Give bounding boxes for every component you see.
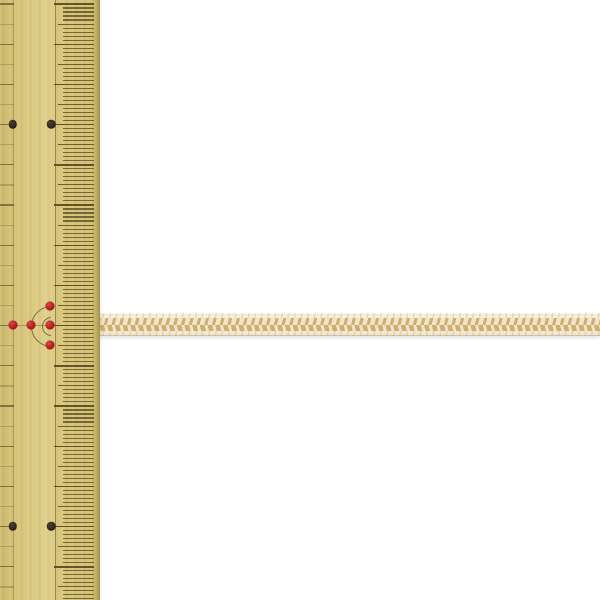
ruler-tick-mm bbox=[63, 329, 94, 330]
ruler-left-guide-line bbox=[13, 0, 14, 600]
ruler-left-tick-cm bbox=[0, 566, 14, 567]
black-dot-upper-left bbox=[8, 120, 17, 129]
ruler-tick-mm bbox=[63, 180, 94, 181]
ruler-tick-mm bbox=[63, 562, 94, 563]
ruler-tick-mm bbox=[63, 341, 94, 342]
ruler-tick-mm bbox=[63, 80, 94, 81]
ruler-tick-mm bbox=[63, 413, 94, 414]
ruler-left-tick-cm bbox=[0, 446, 14, 447]
ruler-tick-mm bbox=[63, 530, 94, 531]
ruler-tick-mm bbox=[63, 28, 94, 29]
ruler-tick-mm bbox=[63, 160, 94, 161]
ruler-tick-mm bbox=[63, 192, 94, 193]
ruler-tick-mm bbox=[63, 188, 94, 189]
ruler-tick-mm bbox=[63, 598, 94, 599]
ruler-tick-mm bbox=[63, 56, 94, 57]
ruler-left-tick-half-cm bbox=[0, 144, 14, 145]
ruler-left-tick-half-cm bbox=[0, 104, 14, 105]
ruler-tick-mm bbox=[63, 458, 94, 459]
ruler-left-tick-half-cm bbox=[0, 225, 14, 226]
ruler-tick-cm bbox=[54, 405, 94, 406]
ruler-tick-mm bbox=[63, 92, 94, 93]
ruler-tick-mm bbox=[63, 168, 94, 169]
ruler-tick-mm bbox=[63, 522, 94, 523]
ruler-tick-mm bbox=[63, 389, 94, 390]
ruler-tick-mm bbox=[63, 108, 94, 109]
bamboo-ruler bbox=[0, 0, 100, 600]
ruler-tick-mm bbox=[63, 510, 94, 511]
ruler-left-tick-cm bbox=[0, 365, 14, 366]
ruler-tick-mm bbox=[63, 237, 94, 238]
ruler-tick-cm bbox=[54, 204, 94, 205]
ruler-tick-cm bbox=[54, 566, 94, 567]
ruler-tick-mm bbox=[63, 7, 94, 8]
ruler-left-tick-half-cm bbox=[0, 305, 14, 306]
ruler-tick-cm bbox=[54, 486, 94, 487]
ruler-tick-mm bbox=[63, 582, 94, 583]
ruler-left-tick-cm bbox=[0, 84, 14, 85]
ruler-tick-mm bbox=[63, 229, 94, 230]
ruler-tick-mm bbox=[63, 558, 94, 559]
ruler-tick-mm bbox=[63, 176, 94, 177]
ruler-tick-mm bbox=[63, 397, 94, 398]
ruler-tick-mm bbox=[63, 417, 94, 418]
ruler-left-tick-cm bbox=[0, 3, 14, 4]
ruler-tick-mm bbox=[63, 393, 94, 394]
ruler-tick-mm bbox=[63, 333, 94, 334]
ruler-tick-mm bbox=[63, 96, 94, 97]
ruler-tick-mm bbox=[63, 434, 94, 435]
cord-bottom-edge bbox=[90, 331, 600, 336]
ruler-tick-cm bbox=[54, 285, 94, 286]
ruler-tick-half-cm bbox=[58, 385, 94, 386]
ruler-tick-mm bbox=[63, 196, 94, 197]
ruler-tick-cm bbox=[54, 325, 94, 326]
ruler-tick-mm bbox=[63, 293, 94, 294]
ruler-tick-mm bbox=[63, 470, 94, 471]
ruler-tick-mm bbox=[63, 478, 94, 479]
ruler-tick-mm bbox=[63, 140, 94, 141]
ruler-tick-mm bbox=[63, 249, 94, 250]
ruler-tick-mm bbox=[63, 574, 94, 575]
ruler-scale-guide-line bbox=[55, 0, 56, 600]
red-dot-far-left bbox=[8, 321, 17, 330]
ruler-tick-mm bbox=[63, 550, 94, 551]
ruler-tick-mm bbox=[63, 570, 94, 571]
ruler-tick-mm bbox=[63, 542, 94, 543]
ruler-tick-mm bbox=[63, 309, 94, 310]
ruler-tick-mm bbox=[63, 490, 94, 491]
ruler-tick-mm bbox=[63, 148, 94, 149]
ruler-tick-mm bbox=[63, 152, 94, 153]
ruler-left-tick-half-cm bbox=[0, 265, 14, 266]
ruler-tick-half-cm bbox=[58, 466, 94, 467]
ruler-tick-mm bbox=[63, 277, 94, 278]
cord-braid-center bbox=[90, 318, 600, 331]
ruler-tick-mm bbox=[63, 502, 94, 503]
ruler-tick-mm bbox=[63, 200, 94, 201]
ruler-tick-half-cm bbox=[58, 546, 94, 547]
ruler-tick-mm bbox=[63, 212, 94, 213]
ruler-tick-mm bbox=[63, 482, 94, 483]
black-dot-lower-left bbox=[8, 522, 17, 531]
ruler-tick-mm bbox=[63, 216, 94, 217]
ruler-tick-mm bbox=[63, 498, 94, 499]
ruler-tick-mm bbox=[63, 15, 94, 16]
ruler-left-tick-half-cm bbox=[0, 184, 14, 185]
ruler-tick-mm bbox=[63, 233, 94, 234]
black-dot-lower-right bbox=[47, 522, 56, 531]
ruler-tick-half-cm bbox=[58, 225, 94, 226]
ruler-tick-half-cm bbox=[58, 265, 94, 266]
ruler-tick-half-cm bbox=[58, 586, 94, 587]
ruler-tick-mm bbox=[63, 281, 94, 282]
ruler-left-tick-cm bbox=[0, 44, 14, 45]
ruler-tick-mm bbox=[63, 438, 94, 439]
black-dot-upper-right bbox=[47, 120, 56, 129]
ruler-tick-mm bbox=[63, 361, 94, 362]
red-dot-left bbox=[26, 321, 35, 330]
ruler-tick-mm bbox=[63, 474, 94, 475]
ruler-tick-mm bbox=[63, 52, 94, 53]
ruler-tick-mm bbox=[63, 409, 94, 410]
ruler-tick-mm bbox=[63, 421, 94, 422]
ruler-tick-mm bbox=[63, 357, 94, 358]
ruler-tick-mm bbox=[63, 518, 94, 519]
ruler-tick-mm bbox=[63, 301, 94, 302]
ruler-tick-mm bbox=[63, 112, 94, 113]
ruler-tick-mm bbox=[63, 337, 94, 338]
braided-cord bbox=[90, 313, 600, 336]
ruler-left-tick-cm bbox=[0, 405, 14, 406]
ruler-tick-mm bbox=[63, 514, 94, 515]
ruler-tick-half-cm bbox=[58, 104, 94, 105]
ruler-tick-mm bbox=[63, 401, 94, 402]
ruler-tick-cm bbox=[54, 245, 94, 246]
ruler-tick-mm bbox=[63, 136, 94, 137]
ruler-tick-cm bbox=[54, 446, 94, 447]
ruler-tick-mm bbox=[63, 220, 94, 221]
ruler-tick-mm bbox=[63, 377, 94, 378]
ruler-left-tick-half-cm bbox=[0, 385, 14, 386]
ruler-tick-mm bbox=[63, 40, 94, 41]
ruler-tick-half-cm bbox=[58, 506, 94, 507]
ruler-left-tick-cm bbox=[0, 486, 14, 487]
product-photo bbox=[0, 0, 600, 600]
ruler-tick-cm bbox=[54, 44, 94, 45]
ruler-tick-cm bbox=[54, 164, 94, 165]
ruler-tick-mm bbox=[63, 590, 94, 591]
ruler-tick-mm bbox=[63, 257, 94, 258]
ruler-left-tick-cm bbox=[0, 285, 14, 286]
ruler-tick-mm bbox=[63, 68, 94, 69]
ruler-tick-cm bbox=[54, 124, 94, 125]
ruler-tick-half-cm bbox=[58, 345, 94, 346]
ruler-tick-mm bbox=[63, 538, 94, 539]
ruler-tick-mm bbox=[63, 450, 94, 451]
ruler-tick-mm bbox=[63, 132, 94, 133]
ruler-tick-mm bbox=[63, 72, 94, 73]
ruler-tick-half-cm bbox=[58, 64, 94, 65]
ruler-tick-mm bbox=[63, 494, 94, 495]
ruler-left-tick-half-cm bbox=[0, 586, 14, 587]
ruler-left-tick-cm bbox=[0, 164, 14, 165]
ruler-tick-mm bbox=[63, 32, 94, 33]
ruler-left-tick-half-cm bbox=[0, 506, 14, 507]
ruler-left-tick-half-cm bbox=[0, 546, 14, 547]
ruler-tick-mm bbox=[63, 462, 94, 463]
ruler-tick-cm bbox=[54, 365, 94, 366]
ruler-tick-mm bbox=[63, 317, 94, 318]
ruler-tick-mm bbox=[63, 381, 94, 382]
ruler-tick-mm bbox=[63, 208, 94, 209]
ruler-tick-mm bbox=[63, 313, 94, 314]
ruler-tick-mm bbox=[63, 116, 94, 117]
ruler-tick-mm bbox=[63, 430, 94, 431]
ruler-left-tick-cm bbox=[0, 245, 14, 246]
ruler-tick-mm bbox=[63, 353, 94, 354]
ruler-tick-mm bbox=[63, 297, 94, 298]
red-dot-top bbox=[46, 301, 55, 310]
ruler-tick-mm bbox=[63, 554, 94, 555]
ruler-left-tick-half-cm bbox=[0, 426, 14, 427]
ruler-tick-mm bbox=[63, 120, 94, 121]
ruler-tick-mm bbox=[63, 369, 94, 370]
ruler-tick-mm bbox=[63, 454, 94, 455]
ruler-tick-mm bbox=[63, 253, 94, 254]
ruler-tick-half-cm bbox=[58, 144, 94, 145]
ruler-tick-cm bbox=[54, 3, 94, 4]
ruler-left-tick-half-cm bbox=[0, 466, 14, 467]
ruler-tick-mm bbox=[63, 172, 94, 173]
ruler-tick-half-cm bbox=[58, 305, 94, 306]
ruler-left-tick-half-cm bbox=[0, 24, 14, 25]
ruler-tick-mm bbox=[63, 100, 94, 101]
ruler-tick-mm bbox=[63, 289, 94, 290]
ruler-tick-mm bbox=[63, 273, 94, 274]
ruler-tick-half-cm bbox=[58, 24, 94, 25]
ruler-tick-mm bbox=[63, 442, 94, 443]
ruler-tick-mm bbox=[63, 19, 94, 20]
ruler-tick-mm bbox=[63, 261, 94, 262]
ruler-tick-mm bbox=[63, 241, 94, 242]
ruler-tick-mm bbox=[63, 269, 94, 270]
ruler-tick-mm bbox=[63, 156, 94, 157]
ruler-tick-mm bbox=[63, 534, 94, 535]
ruler-tick-mm bbox=[63, 349, 94, 350]
ruler-tick-mm bbox=[63, 594, 94, 595]
red-dot-bottom bbox=[46, 340, 55, 349]
ruler-tick-half-cm bbox=[58, 184, 94, 185]
ruler-tick-mm bbox=[63, 373, 94, 374]
ruler-tick-mm bbox=[63, 11, 94, 12]
ruler-left-tick-half-cm bbox=[0, 64, 14, 65]
ruler-tick-mm bbox=[63, 578, 94, 579]
ruler-left-tick-cm bbox=[0, 204, 14, 205]
ruler-tick-mm bbox=[63, 48, 94, 49]
ruler-tick-mm bbox=[63, 321, 94, 322]
red-dot-center bbox=[46, 321, 55, 330]
ruler-tick-mm bbox=[63, 76, 94, 77]
ruler-tick-mm bbox=[63, 88, 94, 89]
ruler-tick-mm bbox=[63, 128, 94, 129]
ruler-tick-half-cm bbox=[58, 426, 94, 427]
ruler-tick-mm bbox=[63, 36, 94, 37]
ruler-tick-cm bbox=[54, 526, 94, 527]
ruler-tick-mm bbox=[63, 60, 94, 61]
ruler-left-tick-half-cm bbox=[0, 345, 14, 346]
ruler-tick-cm bbox=[54, 84, 94, 85]
